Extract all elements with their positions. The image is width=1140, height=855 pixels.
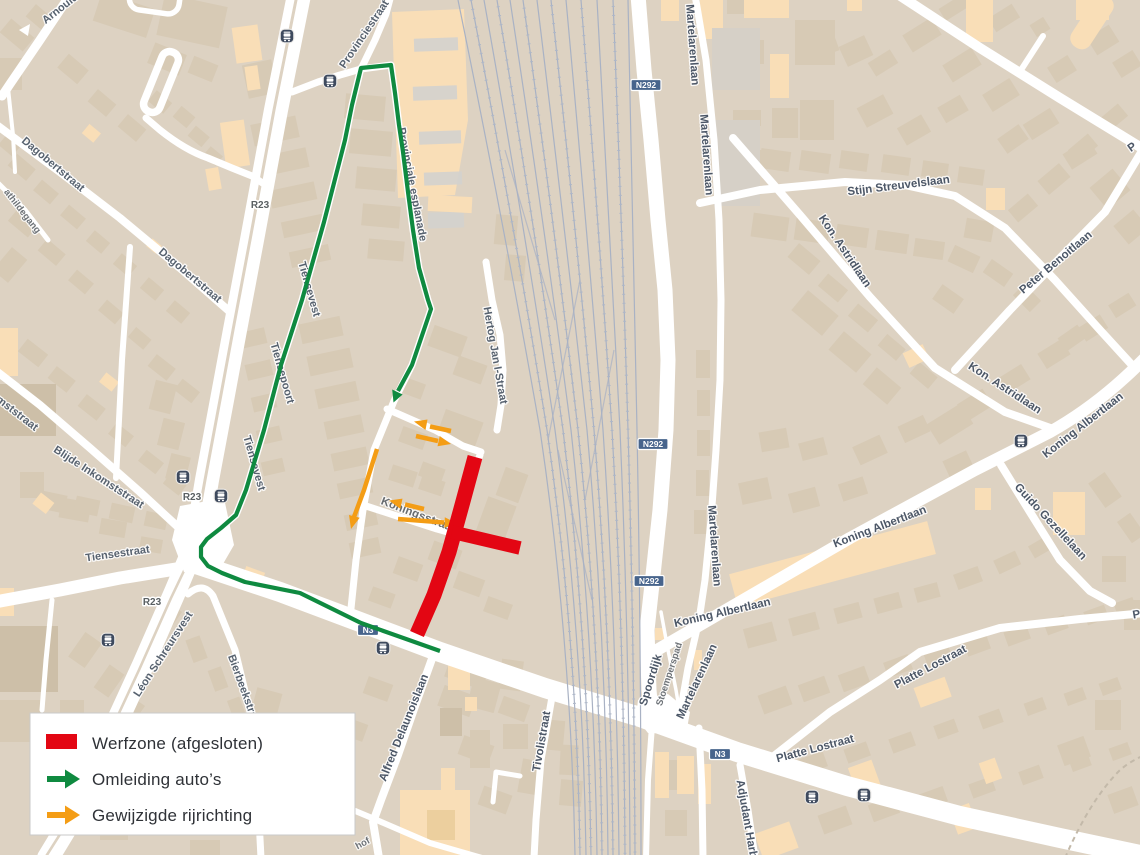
svg-text:P: P <box>1132 608 1140 621</box>
svg-text:Omleiding auto’s: Omleiding auto’s <box>92 770 222 789</box>
svg-text:R23: R23 <box>183 492 202 503</box>
svg-text:Werfzone (afgesloten): Werfzone (afgesloten) <box>92 734 263 753</box>
svg-text:R23: R23 <box>143 597 162 608</box>
svg-text:Gewijzigde rijrichting: Gewijzigde rijrichting <box>92 806 252 825</box>
svg-text:R23: R23 <box>251 200 270 211</box>
